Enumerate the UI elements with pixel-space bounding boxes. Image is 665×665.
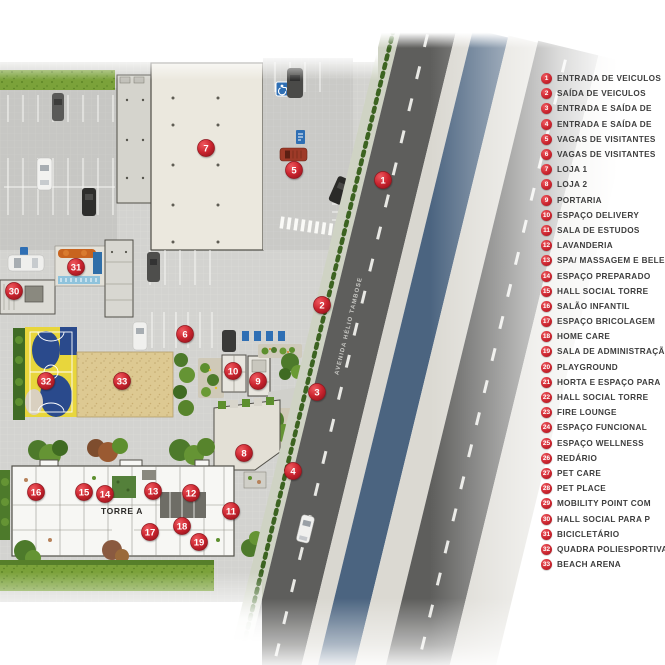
legend-item-label: ENTRADA E SAÍDA DE — [557, 120, 652, 129]
tower-label: TORRE A — [101, 506, 143, 516]
svg-text:3: 3 — [314, 387, 319, 398]
legend-item-28: 28PET PLACE — [541, 481, 665, 496]
legend-item-label: PET PLACE — [557, 484, 606, 493]
svg-text:16: 16 — [31, 487, 42, 498]
legend-item-label: ESPAÇO FUNCIONAL — [557, 423, 647, 432]
car-white-horizontal — [8, 255, 44, 271]
legend-item-8: 8LOJA 2 — [541, 177, 665, 192]
legend-item-number: 19 — [541, 346, 552, 357]
building-mid — [105, 240, 133, 317]
plan-marker-33: 33 — [114, 373, 131, 390]
svg-text:33: 33 — [117, 376, 128, 387]
legend-item-1: 1ENTRADA DE VEICULOS — [541, 71, 665, 86]
legend-item-number: 8 — [541, 179, 552, 190]
legend-item-32: 32QUADRA POLIESPORTIVA — [541, 542, 665, 557]
svg-text:31: 31 — [71, 262, 82, 273]
legend-item-number: 20 — [541, 362, 552, 373]
legend-item-label: HALL SOCIAL TORRE — [557, 287, 648, 296]
legend-item-label: ENTRADA E SAÍDA DE — [557, 104, 652, 113]
legend-item-21: 21HORTA E ESPAÇO PARA — [541, 375, 665, 390]
legend-item-26: 26REDÁRIO — [541, 451, 665, 466]
legend-item-20: 20PLAYGROUND — [541, 360, 665, 375]
plan-marker-12: 12 — [183, 485, 200, 502]
legend-item-25: 25ESPAÇO WELLNESS — [541, 436, 665, 451]
legend-item-number: 9 — [541, 195, 552, 206]
legend-item-number: 16 — [541, 301, 552, 312]
legend-item-label: MOBILITY POINT COM — [557, 499, 651, 508]
legend-item-number: 2 — [541, 88, 552, 99]
legend-item-label: HORTA E ESPAÇO PARA — [557, 378, 661, 387]
legend-item-label: ESPAÇO DELIVERY — [557, 211, 639, 220]
plan-marker-3: 3 — [309, 384, 326, 401]
legend-item-label: PET CARE — [557, 469, 601, 478]
svg-text:18: 18 — [177, 521, 188, 532]
legend-item-33: 33BEACH ARENA — [541, 557, 665, 572]
legend-item-number: 22 — [541, 392, 552, 403]
legend-item-number: 18 — [541, 331, 552, 342]
legend-item-number: 12 — [541, 240, 552, 251]
legend-item-number: 14 — [541, 271, 552, 282]
svg-text:19: 19 — [194, 537, 205, 548]
legend-item-number: 27 — [541, 468, 552, 479]
plan-marker-5: 5 — [286, 162, 303, 179]
plan-marker-31: 31 — [68, 259, 85, 276]
legend-item-22: 22HALL SOCIAL TORRE — [541, 390, 665, 405]
parking-sign-icon — [296, 130, 305, 144]
legend-item-5: 5VAGAS DE VISITANTES — [541, 132, 665, 147]
legend-item-label: ESPAÇO BRICOLAGEM — [557, 317, 655, 326]
legend: 1ENTRADA DE VEICULOS2SAÍDA DE VEICULOS3E… — [541, 71, 665, 572]
legend-item-number: 24 — [541, 422, 552, 433]
legend-item-label: LOJA 1 — [557, 165, 587, 174]
legend-item-10: 10ESPAÇO DELIVERY — [541, 208, 665, 223]
legend-item-number: 1 — [541, 73, 552, 84]
svg-text:15: 15 — [79, 487, 90, 498]
legend-item-label: QUADRA POLIESPORTIVA — [557, 545, 665, 554]
svg-text:8: 8 — [241, 448, 246, 459]
legend-item-number: 26 — [541, 453, 552, 464]
car-visitor-red — [280, 148, 307, 161]
legend-item-24: 24ESPAÇO FUNCIONAL — [541, 420, 665, 435]
svg-text:7: 7 — [203, 143, 208, 154]
legend-item-number: 3 — [541, 103, 552, 114]
legend-item-9: 9PORTARIA — [541, 193, 665, 208]
svg-text:13: 13 — [148, 486, 159, 497]
legend-item-19: 19SALA DE ADMINISTRAÇÃO — [541, 344, 665, 359]
legend-item-label: VAGAS DE VISITANTES — [557, 150, 656, 159]
legend-item-23: 23FIRE LOUNGE — [541, 405, 665, 420]
legend-item-label: SAÍDA DE VEICULOS — [557, 89, 646, 98]
plan-marker-14: 14 — [97, 486, 114, 503]
legend-item-label: LAVANDERIA — [557, 241, 613, 250]
legend-item-number: 32 — [541, 544, 552, 555]
legend-item-2: 2SAÍDA DE VEICULOS — [541, 86, 665, 101]
plan-marker-9: 9 — [250, 373, 267, 390]
svg-text:1: 1 — [380, 175, 386, 186]
legend-item-number: 11 — [541, 225, 552, 236]
legend-item-number: 6 — [541, 149, 552, 160]
legend-item-31: 31BICICLETÁRIO — [541, 527, 665, 542]
legend-item-29: 29MOBILITY POINT COM — [541, 496, 665, 511]
legend-item-number: 21 — [541, 377, 552, 388]
legend-item-number: 15 — [541, 286, 552, 297]
svg-text:32: 32 — [41, 376, 52, 387]
legend-item-17: 17ESPAÇO BRICOLAGEM — [541, 314, 665, 329]
legend-item-label: SALA DE ADMINISTRAÇÃO — [557, 347, 665, 356]
legend-item-label: FIRE LOUNGE — [557, 408, 617, 417]
legend-item-number: 33 — [541, 559, 552, 570]
plan-marker-19: 19 — [191, 534, 208, 551]
legend-item-number: 5 — [541, 134, 552, 145]
svg-text:10: 10 — [228, 366, 239, 377]
legend-item-number: 4 — [541, 119, 552, 130]
svg-text:17: 17 — [145, 527, 156, 538]
svg-text:5: 5 — [291, 165, 297, 176]
plan-marker-10: 10 — [225, 363, 242, 380]
svg-text:6: 6 — [182, 329, 187, 340]
legend-item-number: 7 — [541, 164, 552, 175]
svg-text:4: 4 — [290, 466, 296, 477]
plan-marker-32: 32 — [38, 373, 55, 390]
legend-item-16: 16SALÃO INFANTIL — [541, 299, 665, 314]
legend-item-13: 13SPA/ MASSAGEM E BELEZA — [541, 253, 665, 268]
legend-item-4: 4ENTRADA E SAÍDA DE — [541, 117, 665, 132]
plan-marker-2: 2 — [314, 297, 331, 314]
svg-text:30: 30 — [9, 286, 20, 297]
plan-marker-13: 13 — [145, 483, 162, 500]
legend-item-14: 14ESPAÇO PREPARADO — [541, 268, 665, 283]
svg-text:11: 11 — [226, 506, 237, 517]
legend-item-label: VAGAS DE VISITANTES — [557, 135, 656, 144]
plan-marker-4: 4 — [285, 463, 302, 480]
plan-marker-6: 6 — [177, 326, 194, 343]
legend-item-number: 13 — [541, 255, 552, 266]
legend-item-18: 18HOME CARE — [541, 329, 665, 344]
plan-marker-15: 15 — [76, 484, 93, 501]
legend-item-30: 30HALL SOCIAL PARA P — [541, 511, 665, 526]
legend-item-label: SALÃO INFANTIL — [557, 302, 630, 311]
legend-item-label: HOME CARE — [557, 332, 610, 341]
legend-item-3: 3ENTRADA E SAÍDA DE — [541, 101, 665, 116]
legend-item-label: HALL SOCIAL TORRE — [557, 393, 648, 402]
legend-item-6: 6VAGAS DE VISITANTES — [541, 147, 665, 162]
legend-item-number: 30 — [541, 514, 552, 525]
svg-text:9: 9 — [255, 376, 260, 387]
legend-item-label: LOJA 2 — [557, 180, 587, 189]
plan-marker-18: 18 — [174, 518, 191, 535]
legend-item-number: 25 — [541, 438, 552, 449]
plan-marker-30: 30 — [6, 283, 23, 300]
legend-item-label: ENTRADA DE VEICULOS — [557, 74, 661, 83]
legend-item-number: 23 — [541, 407, 552, 418]
legend-item-label: PORTARIA — [557, 196, 602, 205]
svg-text:2: 2 — [319, 300, 324, 311]
legend-item-number: 10 — [541, 210, 552, 221]
legend-item-label: SALA DE ESTUDOS — [557, 226, 640, 235]
plan-marker-16: 16 — [28, 484, 45, 501]
legend-item-label: BEACH ARENA — [557, 560, 621, 569]
plan-marker-11: 11 — [223, 503, 240, 520]
legend-item-label: PLAYGROUND — [557, 363, 618, 372]
legend-item-number: 31 — [541, 529, 552, 540]
legend-item-label: BICICLETÁRIO — [557, 530, 619, 539]
svg-text:12: 12 — [186, 488, 197, 499]
plan-marker-8: 8 — [236, 445, 253, 462]
legend-item-27: 27PET CARE — [541, 466, 665, 481]
legend-item-7: 7LOJA 1 — [541, 162, 665, 177]
plan-marker-7: 7 — [198, 140, 215, 157]
legend-item-label: REDÁRIO — [557, 454, 597, 463]
legend-item-number: 28 — [541, 483, 552, 494]
legend-item-label: HALL SOCIAL PARA P — [557, 515, 650, 524]
legend-item-label: SPA/ MASSAGEM E BELEZA — [557, 256, 665, 265]
legend-item-number: 29 — [541, 498, 552, 509]
site-plan-page: TORRE A AVENIDA HÉLIO TAMBOSE — [0, 0, 665, 665]
plan-marker-17: 17 — [142, 524, 159, 541]
legend-item-12: 12LAVANDERIA — [541, 238, 665, 253]
svg-text:14: 14 — [100, 489, 111, 500]
legend-item-number: 17 — [541, 316, 552, 327]
legend-item-label: ESPAÇO WELLNESS — [557, 439, 644, 448]
legend-item-label: ESPAÇO PREPARADO — [557, 272, 651, 281]
garden-bed-left — [198, 358, 224, 398]
legend-item-15: 15HALL SOCIAL TORRE — [541, 284, 665, 299]
plan-marker-1: 1 — [375, 172, 392, 189]
legend-item-11: 11SALA DE ESTUDOS — [541, 223, 665, 238]
